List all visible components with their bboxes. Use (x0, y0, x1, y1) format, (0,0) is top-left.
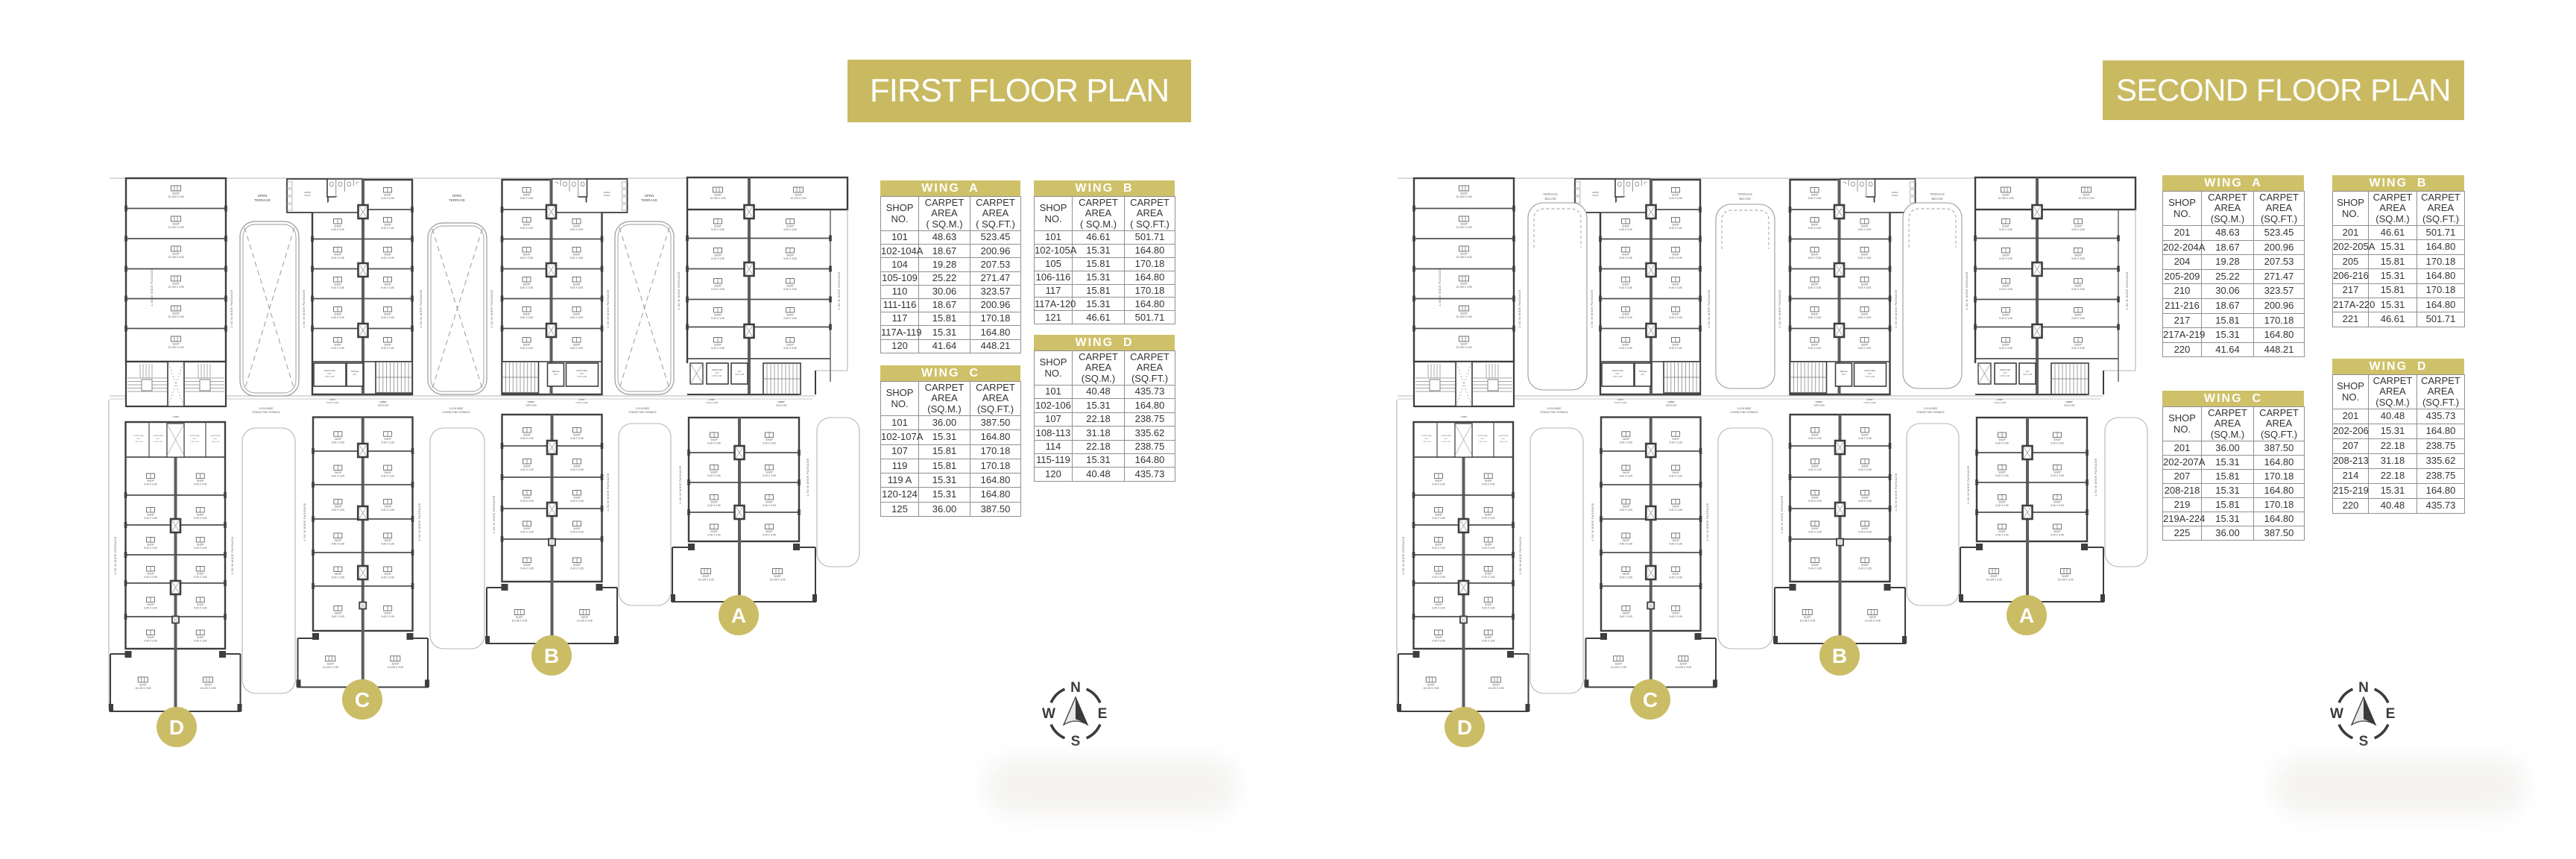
svg-text:A: A (2019, 604, 2034, 627)
svg-text:2.50 X 1.90: 2.50 X 1.90 (713, 375, 722, 377)
svg-text:STRETCHER: STRETCHER (712, 369, 723, 371)
svg-text:STRETCHER: STRETCHER (210, 435, 221, 437)
svg-text:1.90 X 2.50: 1.90 X 2.50 (190, 441, 199, 443)
svg-text:1.50 M WIDE PASSAGE: 1.50 M WIDE PASSAGE (419, 289, 423, 327)
svg-text:1.50 M WIDE PASSAGE: 1.50 M WIDE PASSAGE (150, 268, 154, 306)
svg-text:5.125 X 3.295: 5.125 X 3.295 (575, 401, 588, 404)
svg-text:3.00 M WIDE: 3.00 M WIDE (449, 407, 464, 410)
svg-text:1.50 M WIDE PASSAGE: 1.50 M WIDE PASSAGE (302, 289, 306, 327)
svg-text:5.125 X 3.295: 5.125 X 3.295 (326, 401, 339, 404)
svg-text:1.50 M WIDE PASSAGE: 1.50 M WIDE PASSAGE (230, 536, 234, 574)
svg-text:TERRACE: TERRACE (1930, 192, 1945, 196)
svg-text:1.50 M WIDE PASSAGE: 1.50 M WIDE PASSAGE (606, 473, 610, 511)
svg-text:STRETCHER: STRETCHER (133, 435, 144, 437)
svg-text:TOILET: TOILET (603, 194, 610, 197)
svg-text:CONNECTING TERRACE: CONNECTING TERRACE (442, 411, 470, 414)
svg-text:LIFT: LIFT (580, 373, 584, 375)
svg-text:A: A (731, 604, 746, 627)
svg-text:STRETCHER: STRETCHER (323, 370, 335, 372)
svg-text:1.50 M WIDE PASSAGE: 1.50 M WIDE PASSAGE (303, 503, 306, 541)
svg-text:1.50 M WIDE PASSAGE: 1.50 M WIDE PASSAGE (492, 495, 496, 533)
svg-text:2.75 X 1.90: 2.75 X 1.90 (577, 376, 587, 378)
svg-text:TERRACE: TERRACE (449, 198, 465, 202)
svg-text:LADIES: LADIES (304, 191, 311, 194)
svg-text:1.50 M WIDE PASSAGE: 1.50 M WIDE PASSAGE (806, 458, 809, 496)
svg-text:B: B (544, 644, 559, 667)
svg-text:TERRACE: TERRACE (1737, 192, 1752, 196)
svg-text:SERVICE: SERVICE (351, 371, 359, 373)
svg-text:CONNECTING TERRACE: CONNECTING TERRACE (252, 411, 280, 414)
svg-text:LIFT: LIFT (214, 438, 218, 440)
svg-text:W: W (1042, 706, 1055, 722)
svg-text:LOBBY: LOBBY (379, 400, 387, 403)
svg-text:LOBBY: LOBBY (709, 398, 716, 401)
svg-text:W: W (2330, 706, 2343, 722)
svg-text:2.75 X 1.90: 2.75 X 1.90 (325, 376, 335, 378)
svg-text:3.00 M WIDE: 3.00 M WIDE (636, 407, 650, 410)
svg-text:1.90 X 1.90: 1.90 X 1.90 (735, 374, 745, 376)
svg-text:1.50 M WIDE PASSAGE: 1.50 M WIDE PASSAGE (678, 465, 682, 503)
svg-text:1.50 M WIDE PASSAGE: 1.50 M WIDE PASSAGE (606, 289, 610, 327)
svg-text:CONNECTING TERRACE: CONNECTING TERRACE (628, 411, 657, 414)
svg-text:S: S (2359, 734, 2369, 749)
svg-text:OPEN: OPEN (644, 194, 654, 198)
svg-text:LIFT: LIFT (716, 372, 719, 374)
svg-text:BELOW: BELOW (1739, 197, 1750, 201)
svg-text:LOBBY: LOBBY (329, 398, 336, 401)
svg-text:SERVICE: SERVICE (552, 371, 560, 373)
svg-text:C: C (1643, 688, 1658, 711)
svg-text:N: N (1070, 680, 1081, 696)
svg-text:1.90 X 2.50: 1.90 X 2.50 (211, 441, 220, 443)
svg-text:3.00 M WIDE: 3.00 M WIDE (259, 407, 274, 410)
svg-text:5.125 X 3.295: 5.125 X 3.295 (706, 401, 719, 404)
svg-text:BELOW: BELOW (1544, 197, 1556, 201)
svg-text:1.90 X 2.50: 1.90 X 2.50 (154, 441, 162, 443)
svg-text:STRETCHER: STRETCHER (153, 435, 163, 437)
svg-text:5.25 X 2.20: 5.25 X 2.20 (525, 404, 537, 407)
svg-text:LIFT: LIFT (738, 371, 742, 373)
svg-text:LIFT: LIFT (327, 373, 332, 375)
svg-text:TERRACE: TERRACE (254, 198, 271, 202)
svg-text:BELOW: BELOW (1931, 197, 1942, 201)
svg-text:1.50 M WIDE PASSAGE: 1.50 M WIDE PASSAGE (230, 289, 233, 327)
svg-text:LIFT: LIFT (353, 374, 357, 376)
svg-text:D: D (1457, 716, 1472, 739)
svg-text:1.50 M WIDE PASSAGE: 1.50 M WIDE PASSAGE (113, 536, 117, 574)
svg-text:1.50 M WIDE PASSAGE: 1.50 M WIDE PASSAGE (490, 289, 493, 327)
svg-text:LOBBY: LOBBY (777, 400, 785, 403)
svg-text:D: D (169, 716, 184, 739)
svg-text:1.50 M WIDE PASSAGE: 1.50 M WIDE PASSAGE (417, 503, 421, 541)
svg-text:C: C (355, 688, 370, 711)
svg-text:TERRACE: TERRACE (1543, 192, 1558, 196)
svg-text:5.25 X 2.20: 5.25 X 2.20 (378, 404, 389, 407)
svg-text:E: E (1098, 706, 1108, 722)
svg-text:OPEN: OPEN (257, 194, 267, 198)
svg-text:STRETCHER: STRETCHER (576, 370, 587, 372)
svg-text:1.50 M WIDE PASSAGE: 1.50 M WIDE PASSAGE (677, 271, 681, 309)
svg-text:TOILET: TOILET (304, 194, 311, 197)
svg-text:OPEN: OPEN (452, 194, 461, 198)
svg-text:LIFT: LIFT (554, 374, 558, 376)
svg-text:5.25 X 2.20: 5.25 X 2.20 (776, 404, 787, 407)
svg-text:E: E (2386, 706, 2396, 722)
svg-text:LIFT: LIFT (137, 438, 141, 440)
svg-text:LOBBY: LOBBY (578, 398, 585, 401)
svg-text:1.50 M WIDE PASSAGE: 1.50 M WIDE PASSAGE (837, 271, 841, 309)
svg-text:TERRACE: TERRACE (641, 198, 657, 202)
svg-text:S: S (1071, 734, 1081, 749)
svg-text:N: N (2358, 680, 2369, 696)
svg-text:LOBBY: LOBBY (528, 400, 535, 403)
svg-text:LADIES: LADIES (603, 191, 610, 194)
svg-text:STRETCHER: STRETCHER (189, 435, 200, 437)
svg-text:LOBBY: LOBBY (172, 415, 179, 418)
svg-text:LIFT: LIFT (157, 438, 160, 440)
svg-text:1.90 X 2.50: 1.90 X 2.50 (134, 441, 143, 443)
svg-text:B: B (1832, 644, 1847, 667)
svg-text:LIFT: LIFT (193, 438, 197, 440)
